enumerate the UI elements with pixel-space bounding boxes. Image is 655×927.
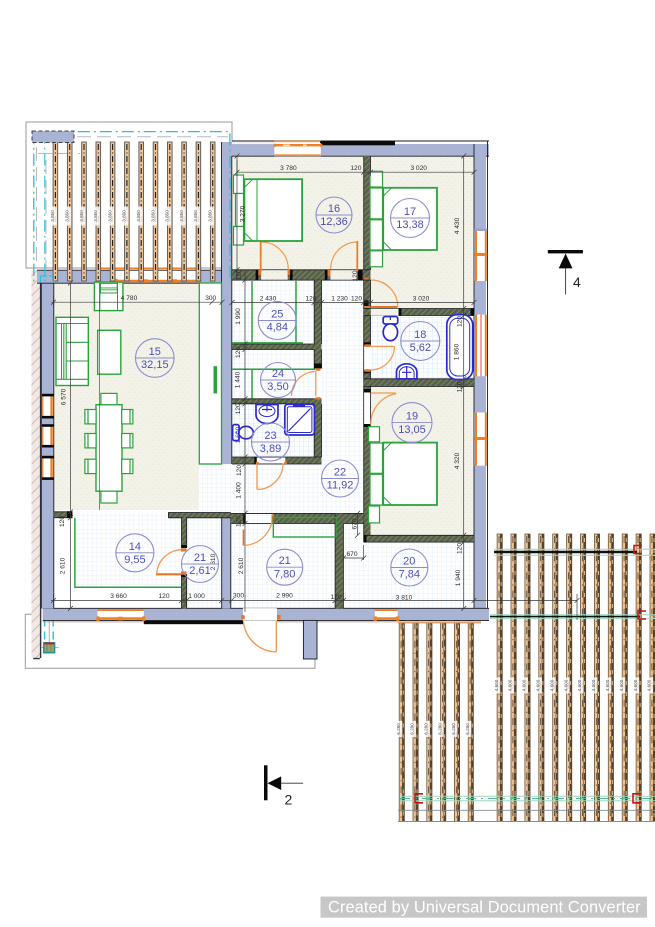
svg-text:120: 120: [350, 165, 361, 172]
svg-text:3.850: 3.850: [107, 210, 112, 222]
svg-text:20: 20: [403, 556, 415, 568]
svg-text:14: 14: [129, 541, 141, 553]
svg-text:17: 17: [404, 206, 416, 218]
svg-text:Created by Universal Document: Created by Universal Document Converter: [328, 899, 641, 917]
svg-text:670: 670: [346, 551, 357, 558]
svg-text:19: 19: [406, 411, 418, 423]
svg-text:120: 120: [59, 516, 66, 527]
svg-text:3 020: 3 020: [413, 295, 430, 302]
svg-text:25: 25: [271, 309, 283, 321]
svg-text:24: 24: [272, 368, 284, 380]
svg-text:120: 120: [235, 403, 242, 414]
svg-text:21: 21: [194, 552, 206, 564]
svg-text:3.850: 3.850: [208, 210, 213, 222]
svg-text:3 660: 3 660: [110, 593, 127, 600]
svg-text:3,50: 3,50: [267, 381, 288, 393]
svg-text:670: 670: [352, 518, 359, 529]
svg-text:15: 15: [149, 346, 161, 358]
svg-text:22: 22: [334, 467, 346, 479]
svg-text:120: 120: [236, 269, 243, 280]
svg-text:4.600: 4.600: [549, 679, 554, 691]
svg-text:120: 120: [235, 347, 242, 358]
svg-text:1 600: 1 600: [235, 426, 242, 443]
svg-text:120: 120: [330, 594, 341, 601]
svg-text:23: 23: [264, 430, 276, 442]
svg-text:4.600: 4.600: [619, 679, 624, 691]
svg-text:21: 21: [279, 555, 291, 567]
svg-text:32,15: 32,15: [141, 359, 169, 371]
svg-text:3.850: 3.850: [165, 210, 170, 222]
svg-text:4.600: 4.600: [522, 679, 527, 691]
svg-text:120: 120: [457, 381, 464, 392]
svg-text:3,89: 3,89: [260, 443, 281, 455]
svg-text:1 230: 1 230: [331, 295, 348, 302]
svg-text:4.600: 4.600: [577, 679, 582, 691]
svg-text:1 860: 1 860: [454, 343, 461, 360]
svg-text:120: 120: [158, 593, 169, 600]
svg-text:6.280: 6.280: [451, 723, 456, 735]
svg-text:120: 120: [236, 516, 243, 527]
svg-text:4.600: 4.600: [591, 679, 596, 691]
svg-text:3.850: 3.850: [136, 210, 141, 222]
svg-text:3.850: 3.850: [79, 210, 84, 222]
svg-text:3 780: 3 780: [280, 165, 297, 172]
svg-text:6.280: 6.280: [465, 723, 470, 735]
svg-text:2 610: 2 610: [210, 553, 217, 570]
svg-text:120: 120: [351, 295, 362, 302]
svg-text:4 430: 4 430: [454, 217, 461, 234]
svg-text:1 940: 1 940: [455, 569, 462, 586]
svg-text:1 440: 1 440: [235, 371, 242, 388]
svg-text:4.600: 4.600: [633, 679, 638, 691]
svg-text:4.600: 4.600: [563, 679, 568, 691]
svg-text:4.600: 4.600: [494, 679, 499, 691]
svg-text:6.280: 6.280: [424, 723, 429, 735]
svg-text:120: 120: [305, 295, 316, 302]
svg-text:3.850: 3.850: [150, 210, 155, 222]
svg-text:3.850: 3.850: [193, 210, 198, 222]
svg-text:2 610: 2 610: [60, 557, 67, 574]
svg-text:2,61: 2,61: [189, 565, 210, 577]
svg-text:1 000: 1 000: [188, 593, 205, 600]
svg-text:3.850: 3.850: [93, 210, 98, 222]
svg-text:3 020: 3 020: [410, 165, 427, 172]
svg-text:7,84: 7,84: [399, 569, 420, 581]
svg-text:4.600: 4.600: [536, 679, 541, 691]
svg-text:3 810: 3 810: [396, 595, 413, 602]
svg-text:11,92: 11,92: [327, 480, 354, 492]
svg-text:1 990: 1 990: [235, 308, 242, 325]
svg-text:13,05: 13,05: [398, 424, 426, 436]
svg-text:5,62: 5,62: [410, 342, 431, 354]
svg-text:13,38: 13,38: [396, 219, 424, 231]
svg-text:4 780: 4 780: [121, 295, 138, 302]
svg-text:12,36: 12,36: [320, 216, 348, 228]
svg-text:2 990: 2 990: [276, 593, 293, 600]
svg-text:120: 120: [457, 543, 464, 554]
svg-text:4 320: 4 320: [454, 452, 461, 469]
svg-text:4,84: 4,84: [267, 322, 288, 334]
svg-text:120: 120: [457, 316, 464, 327]
svg-text:6.280: 6.280: [396, 723, 401, 735]
svg-text:6.280: 6.280: [410, 723, 415, 735]
svg-text:1 400: 1 400: [236, 482, 243, 499]
svg-text:4.600: 4.600: [508, 679, 513, 691]
svg-text:4.600: 4.600: [647, 679, 652, 691]
svg-text:3.850: 3.850: [65, 210, 70, 222]
svg-text:2 610: 2 610: [238, 557, 245, 574]
svg-text:7,80: 7,80: [274, 568, 295, 580]
svg-text:4: 4: [573, 274, 581, 290]
svg-text:300: 300: [233, 593, 244, 600]
svg-text:4.600: 4.600: [605, 679, 610, 691]
svg-text:3 270: 3 270: [240, 205, 247, 222]
svg-text:9,55: 9,55: [124, 554, 145, 566]
svg-text:2: 2: [285, 792, 293, 808]
svg-text:16: 16: [328, 203, 340, 215]
svg-text:3.850: 3.850: [122, 210, 127, 222]
svg-text:120: 120: [236, 465, 243, 476]
svg-text:18: 18: [414, 329, 426, 341]
svg-text:3.850: 3.850: [179, 210, 184, 222]
svg-text:6 570: 6 570: [61, 388, 68, 405]
svg-text:300: 300: [205, 295, 216, 302]
svg-text:3.850: 3.850: [50, 210, 55, 222]
svg-text:120: 120: [352, 270, 359, 281]
svg-text:6.280: 6.280: [437, 723, 442, 735]
